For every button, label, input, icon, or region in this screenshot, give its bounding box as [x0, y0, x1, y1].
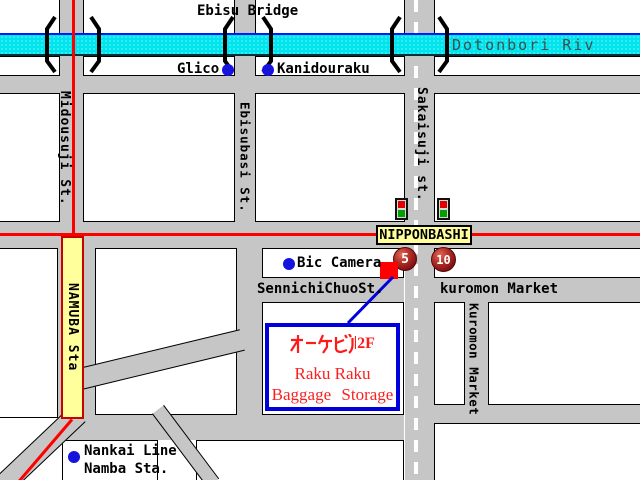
- bic-camera-marker: [283, 258, 295, 270]
- ebisu-bridge-label: Ebisu Bridge: [197, 4, 298, 19]
- kanidouraku-label: Kanidouraku: [277, 62, 370, 77]
- katakana-okebiru-text: [290, 334, 356, 354]
- kuromon-market-label: kuromon Market: [440, 282, 558, 297]
- destination-name-line2: Baggage Storage: [269, 385, 396, 405]
- glico-label: Glico: [177, 62, 219, 77]
- destination-name-line1: Raku Raku: [269, 364, 396, 384]
- building-floor-label: 2F: [357, 336, 375, 352]
- destination-info-box: 2F Raku Raku Baggage Storage: [265, 323, 400, 411]
- ebisubashi-street-label: Ebisubasi St.: [238, 102, 251, 213]
- kanidouraku-marker: [262, 64, 274, 76]
- sennichi-chuo-label: SennichiChuoSt.: [257, 282, 383, 297]
- nankai-line-label: Nankai Line: [84, 444, 177, 459]
- bic-camera-label: Bic Camera: [297, 256, 381, 271]
- map-canvas: Dotonbori Riv NAMUBA Sta NIPPONBASHI 5 1…: [0, 0, 640, 480]
- sakaisuji-street-label: Sakaisuji st.: [415, 87, 428, 202]
- nankai-namba-sta-label: Namba Sta.: [84, 462, 168, 477]
- nankai-namba-marker: [68, 451, 80, 463]
- kuromon-market-vertical-label: Kuromon Market: [467, 303, 480, 415]
- glico-marker: [222, 64, 234, 76]
- building-name-row: 2F: [269, 334, 396, 354]
- midousuji-street-label: Midousuji St.: [58, 91, 71, 206]
